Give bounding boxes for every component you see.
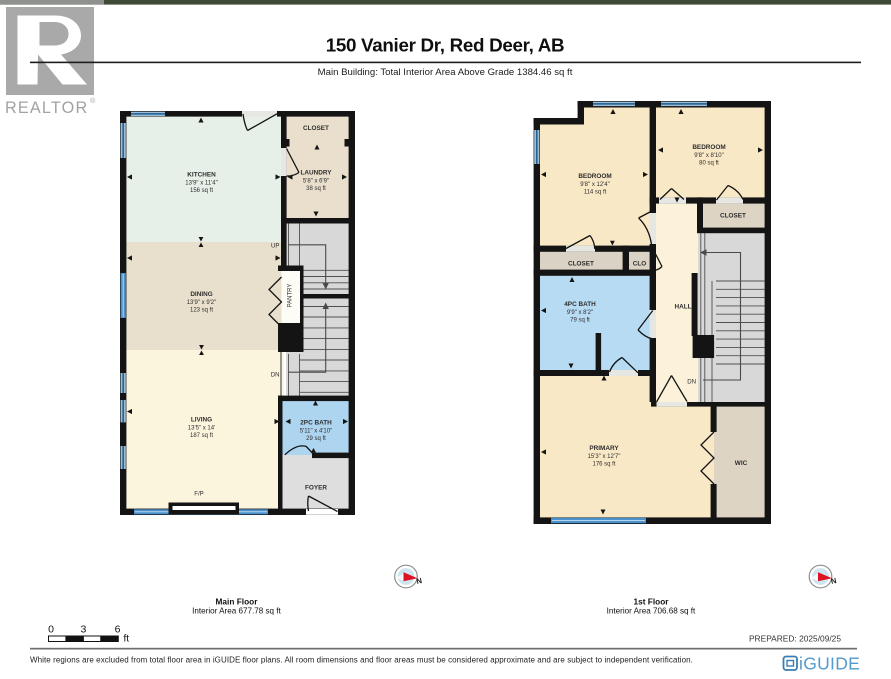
svg-text:DN: DN bbox=[271, 372, 280, 379]
svg-text:114 sq ft: 114 sq ft bbox=[584, 190, 607, 196]
svg-text:15'3" x 12'7": 15'3" x 12'7" bbox=[588, 454, 621, 460]
svg-text:13'5" x 14': 13'5" x 14' bbox=[188, 426, 215, 432]
svg-text:F/P: F/P bbox=[194, 491, 203, 498]
svg-text:5'8" x 6'9": 5'8" x 6'9" bbox=[303, 179, 329, 185]
svg-text:PRIMARY: PRIMARY bbox=[589, 445, 619, 452]
svg-text:6: 6 bbox=[115, 624, 121, 636]
svg-text:PANTRY: PANTRY bbox=[288, 284, 294, 308]
svg-text:Main Floor: Main Floor bbox=[216, 597, 259, 607]
svg-text:BEDROOM: BEDROOM bbox=[578, 173, 611, 180]
svg-text:BEDROOM: BEDROOM bbox=[692, 144, 725, 151]
svg-text:79 sq ft: 79 sq ft bbox=[570, 318, 590, 324]
svg-text:HALL: HALL bbox=[674, 304, 691, 311]
svg-text:WIC: WIC bbox=[735, 460, 748, 467]
svg-text:38 sq ft: 38 sq ft bbox=[306, 186, 326, 192]
svg-text:0: 0 bbox=[48, 624, 54, 636]
svg-text:187 sq ft: 187 sq ft bbox=[190, 433, 213, 439]
svg-text:®: ® bbox=[90, 96, 96, 105]
svg-text:156 sq ft: 156 sq ft bbox=[190, 188, 213, 194]
svg-text:Main Building: Total Interior: Main Building: Total Interior Area Above… bbox=[318, 67, 573, 78]
svg-text:PREPARED: 2025/09/25: PREPARED: 2025/09/25 bbox=[749, 634, 841, 644]
svg-text:1st Floor: 1st Floor bbox=[633, 597, 669, 607]
svg-text:FOYER: FOYER bbox=[305, 485, 327, 492]
svg-text:13'9" x 11'4": 13'9" x 11'4" bbox=[185, 181, 217, 187]
svg-text:150 Vanier Dr, Red Deer, AB: 150 Vanier Dr, Red Deer, AB bbox=[326, 35, 565, 56]
svg-text:9'8" x 8'10": 9'8" x 8'10" bbox=[694, 153, 724, 159]
svg-text:CLOSET: CLOSET bbox=[720, 213, 746, 220]
svg-text:123 sq ft: 123 sq ft bbox=[190, 308, 213, 314]
svg-text:DN: DN bbox=[687, 379, 696, 386]
svg-text:13'9" x 9'2": 13'9" x 9'2" bbox=[187, 300, 217, 306]
svg-text:ft: ft bbox=[124, 634, 130, 645]
svg-text:KITCHEN: KITCHEN bbox=[187, 172, 216, 179]
svg-text:2PC BATH: 2PC BATH bbox=[300, 420, 332, 427]
svg-text:Interior Area 677.78 sq ft: Interior Area 677.78 sq ft bbox=[192, 607, 281, 616]
svg-text:White regions are excluded fro: White regions are excluded from total fl… bbox=[30, 656, 693, 665]
svg-text:LAUNDRY: LAUNDRY bbox=[300, 170, 332, 177]
svg-text:29 sq ft: 29 sq ft bbox=[306, 436, 326, 442]
svg-text:LIVING: LIVING bbox=[191, 417, 212, 424]
svg-text:9'9" x 8'2": 9'9" x 8'2" bbox=[567, 310, 593, 316]
svg-text:CLOSET: CLOSET bbox=[303, 125, 329, 132]
svg-text:CLO: CLO bbox=[633, 261, 647, 268]
svg-text:REALTOR: REALTOR bbox=[5, 99, 88, 117]
svg-text:9'8" x 12'4": 9'8" x 12'4" bbox=[580, 182, 610, 188]
svg-text:iGUIDE: iGUIDE bbox=[799, 654, 860, 674]
svg-text:CLOSET: CLOSET bbox=[568, 261, 594, 268]
svg-text:4PC BATH: 4PC BATH bbox=[564, 301, 596, 308]
svg-text:5'11" x 4'10": 5'11" x 4'10" bbox=[300, 429, 332, 435]
svg-text:Interior Area 706.68 sq ft: Interior Area 706.68 sq ft bbox=[607, 607, 696, 616]
svg-text:DINING: DINING bbox=[190, 291, 212, 298]
svg-text:3: 3 bbox=[80, 624, 86, 636]
svg-text:176 sq ft: 176 sq ft bbox=[592, 462, 615, 468]
svg-text:80 sq ft: 80 sq ft bbox=[699, 161, 719, 167]
svg-text:UP: UP bbox=[271, 243, 279, 250]
